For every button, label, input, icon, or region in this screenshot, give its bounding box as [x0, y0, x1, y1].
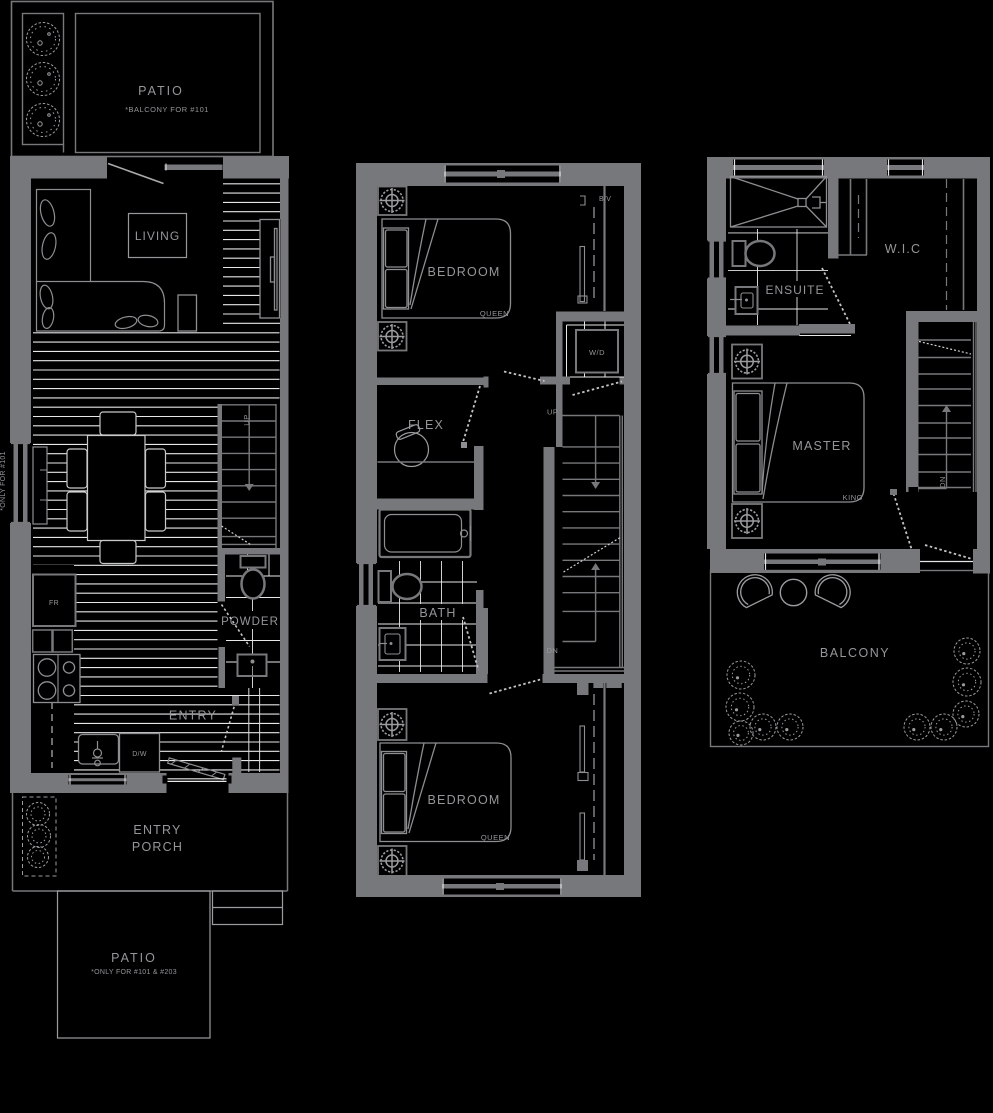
- svg-text:W/D: W/D: [589, 348, 605, 357]
- svg-text:ENTRY: ENTRY: [133, 823, 181, 837]
- svg-text:*ONLY FOR #101 & #203: *ONLY FOR #101 & #203: [91, 969, 177, 976]
- svg-text:KING: KING: [843, 493, 863, 502]
- svg-text:MASTER: MASTER: [792, 439, 851, 453]
- svg-text:UP: UP: [242, 414, 251, 425]
- svg-text:LIVING: LIVING: [135, 229, 180, 243]
- svg-text:QUEEN: QUEEN: [480, 309, 509, 318]
- svg-text:BATH: BATH: [419, 606, 456, 620]
- svg-text:B/V: B/V: [599, 196, 611, 203]
- svg-text:DN: DN: [547, 646, 559, 655]
- svg-text:*ONLY FOR #101: *ONLY FOR #101: [0, 451, 7, 511]
- svg-text:ENTRY: ENTRY: [169, 709, 217, 723]
- svg-text:PATIO: PATIO: [138, 84, 184, 98]
- svg-text:DN: DN: [938, 476, 947, 488]
- svg-text:BEDROOM: BEDROOM: [428, 793, 501, 807]
- svg-text:QUEEN: QUEEN: [481, 833, 510, 842]
- svg-text:PORCH: PORCH: [132, 840, 183, 854]
- svg-text:BALCONY: BALCONY: [820, 646, 890, 660]
- svg-text:UP: UP: [547, 408, 558, 417]
- svg-text:BEDROOM: BEDROOM: [428, 265, 501, 279]
- svg-text:ENSUITE: ENSUITE: [765, 283, 824, 297]
- svg-text:D/W: D/W: [132, 751, 147, 758]
- svg-text:W.I.C: W.I.C: [885, 242, 922, 256]
- svg-text:FR: FR: [49, 600, 59, 607]
- svg-text:PATIO: PATIO: [111, 951, 157, 965]
- svg-text:*BALCONY FOR #101: *BALCONY FOR #101: [125, 105, 209, 114]
